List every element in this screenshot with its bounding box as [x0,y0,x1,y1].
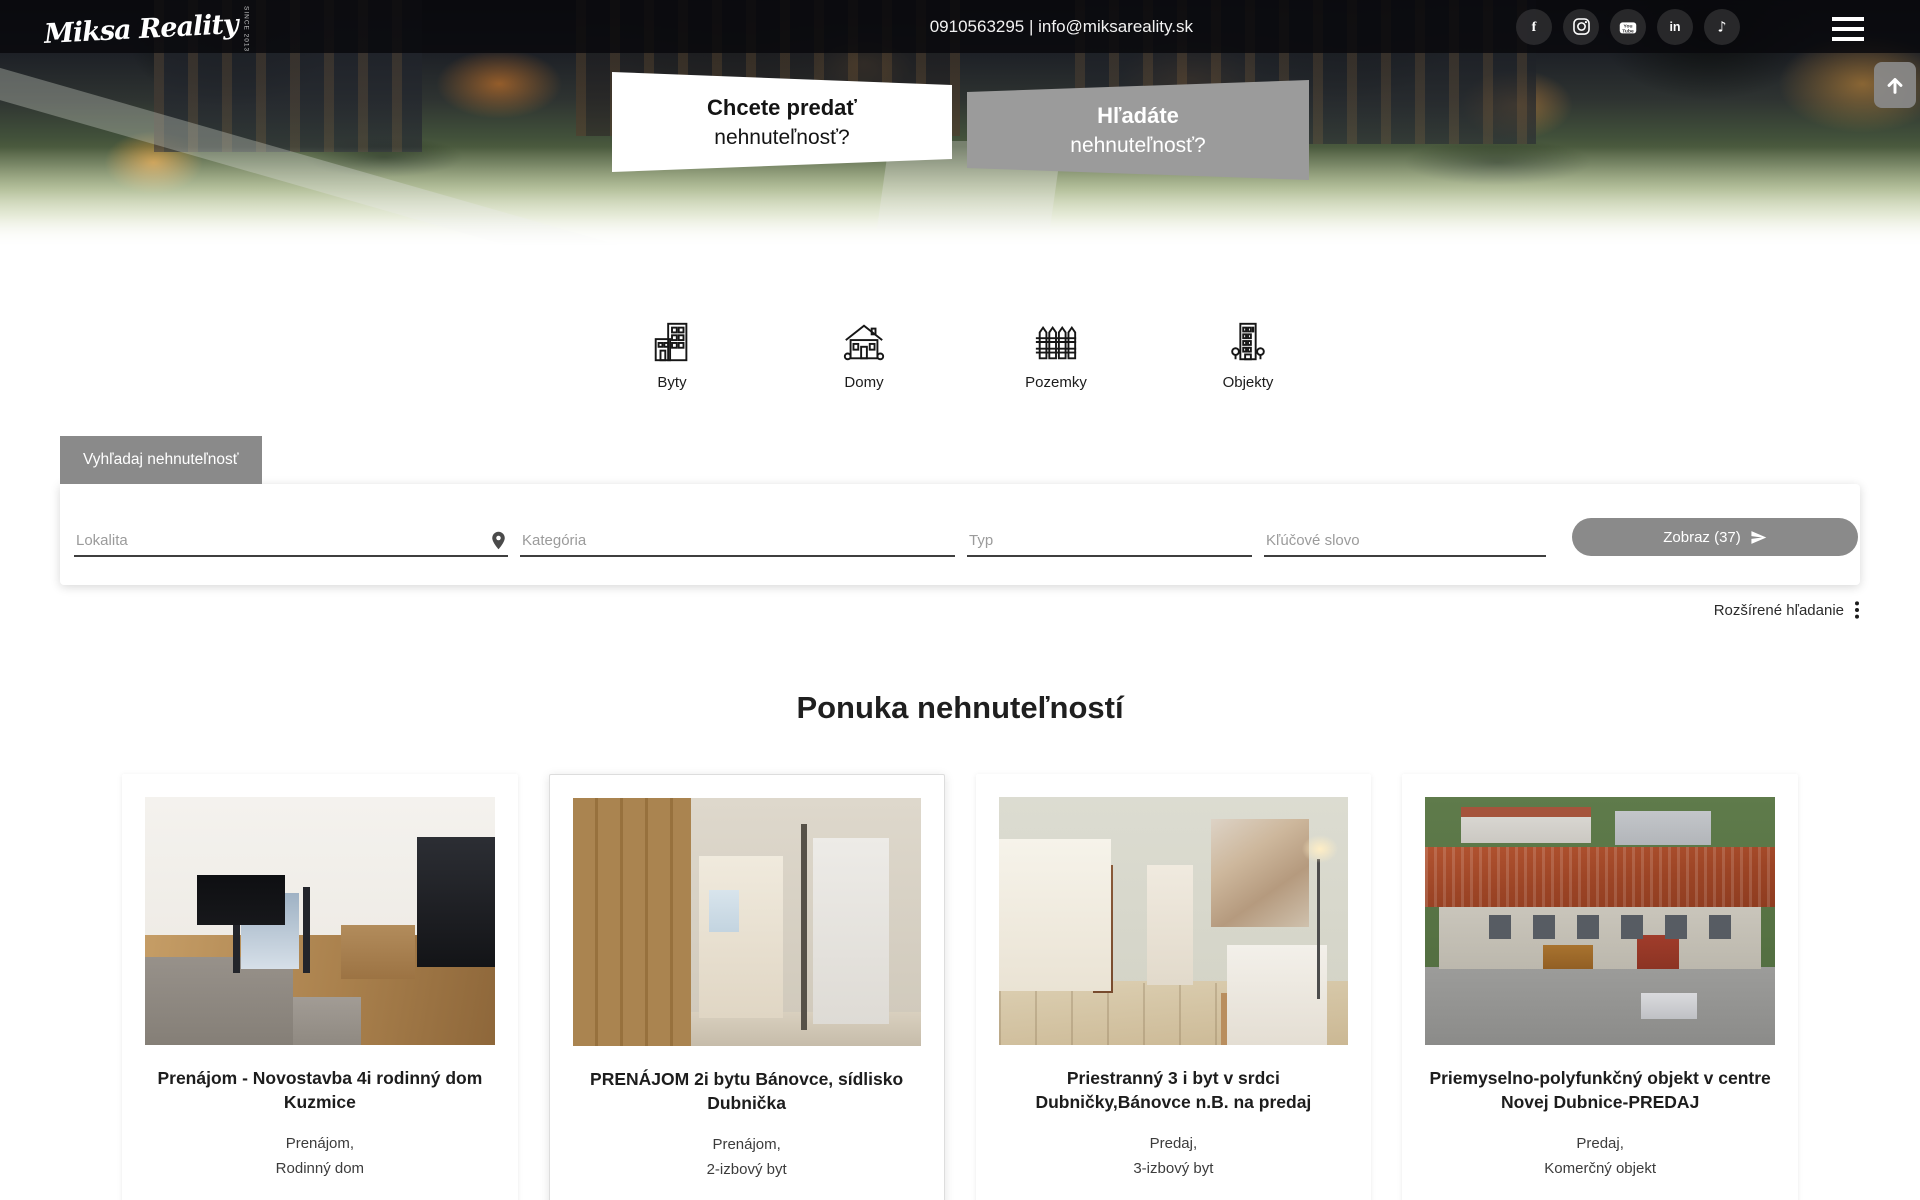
hero-section: Miksa Reality since 2013 0910563295 | in… [0,0,1920,262]
property-category: 3-izbový byt [999,1157,1349,1182]
property-card[interactable]: Priestranný 3 i byt v srdci Dubničky,Bán… [976,774,1372,1200]
scroll-top-button[interactable] [1874,62,1916,108]
menu-bar [1832,17,1864,21]
facebook-icon: f [1524,17,1544,37]
category-byty[interactable]: Byty [626,319,718,391]
type-field [967,526,1252,557]
svg-text:Tube: Tube [1622,28,1634,34]
find-property-banner[interactable]: Hľadáte nehnuteľnosť? [967,80,1309,180]
kebab-menu-icon [1854,600,1860,620]
send-icon [1750,529,1767,546]
social-links: f You Tube in [1516,9,1740,45]
property-category: Rodinný dom [145,1157,495,1182]
menu-bar [1832,27,1864,31]
category-domy[interactable]: Domy [818,319,910,391]
property-category: 2-izbový byt [573,1158,921,1183]
property-meta: Prenájom, 2-izbový byt [573,1133,921,1183]
category-label: Byty [657,374,686,391]
property-photo[interactable] [145,797,495,1045]
property-type: Predaj, [999,1132,1349,1157]
property-meta: Predaj, Komerčný objekt [1425,1132,1775,1182]
property-cards: Prenájom - Novostavba 4i rodinný dom Kuz… [122,774,1798,1200]
svg-text:♪: ♪ [1717,19,1726,35]
contact-info[interactable]: 0910563295 | info@miksareality.sk [930,17,1193,37]
category-label: Domy [844,374,883,391]
property-photo[interactable] [999,797,1349,1045]
listings-title: Ponuka nehnuteľností [0,690,1920,726]
property-card[interactable]: Priemyselno-polyfunkčný objekt v centre … [1402,774,1798,1200]
page: Miksa Reality since 2013 0910563295 | in… [0,0,1920,1200]
menu-button[interactable] [1832,17,1864,41]
property-type: Predaj, [1425,1132,1775,1157]
location-input[interactable] [74,526,508,557]
map-pin-icon [491,531,506,550]
category-label: Objekty [1223,374,1274,391]
category-objekty[interactable]: Objekty [1202,319,1294,391]
category-pozemky[interactable]: Pozemky [1010,319,1102,391]
category-shortcuts: Byty Domy Pozemky [0,262,1920,391]
advanced-search-row: Rozšírené hľadanie [60,600,1860,620]
youtube-link[interactable]: You Tube [1610,9,1646,45]
find-banner-line1: Hľadáte [1097,103,1179,129]
type-input[interactable] [967,526,1252,557]
category-label: Pozemky [1025,374,1087,391]
sell-banner-line2: nehnuteľnosť? [714,126,849,150]
sell-property-banner[interactable]: Chcete predať nehnuteľnosť? [612,72,952,172]
keyword-input[interactable] [1264,526,1546,557]
property-card[interactable]: Prenájom - Novostavba 4i rodinný dom Kuz… [122,774,518,1200]
tiktok-link[interactable]: ♪ [1704,9,1740,45]
top-bar: Miksa Reality since 2013 0910563295 | in… [0,0,1920,53]
linkedin-link[interactable]: in [1657,9,1693,45]
facebook-link[interactable]: f [1516,9,1552,45]
find-banner-line2: nehnuteľnosť? [1070,134,1205,158]
keyword-field [1264,526,1546,557]
property-photo[interactable] [573,798,921,1046]
advanced-search-label: Rozšírené hľadanie [1714,602,1844,619]
instagram-link[interactable] [1563,9,1599,45]
property-title[interactable]: Prenájom - Novostavba 4i rodinný dom Kuz… [145,1067,495,1114]
menu-bar [1832,37,1864,41]
property-meta: Prenájom, Rodinný dom [145,1132,495,1182]
property-title[interactable]: Priemyselno-polyfunkčný objekt v centre … [1425,1067,1775,1114]
apartments-icon [649,319,695,365]
svg-text:in: in [1669,20,1680,34]
search-panel: Zobraz (37) [60,484,1860,585]
property-title[interactable]: Priestranný 3 i byt v srdci Dubničky,Bán… [999,1067,1349,1114]
fence-icon [1033,319,1079,365]
property-category: Komerčný objekt [1425,1157,1775,1182]
category-field [520,526,955,557]
property-meta: Predaj, 3-izbový byt [999,1132,1349,1182]
logo[interactable]: Miksa Reality since 2013 [44,6,257,52]
logo-tagline: since 2013 [243,6,250,52]
listings-section: Ponuka nehnuteľností Prenájom - Novostav… [0,690,1920,1200]
property-type: Prenájom, [145,1132,495,1157]
advanced-search-link[interactable]: Rozšírené hľadanie [1714,600,1860,620]
house-icon [841,319,887,365]
arrow-up-icon [1884,74,1906,96]
logo-text: Miksa Reality [43,9,238,50]
category-input[interactable] [520,526,955,557]
svg-text:f: f [1532,19,1537,35]
location-field [74,526,508,557]
instagram-icon [1572,17,1591,36]
linkedin-icon: in [1665,17,1685,37]
property-card[interactable]: PRENÁJOM 2i bytu Bánovce, sídlisko Dubni… [549,774,945,1200]
search-tab[interactable]: Vyhľadaj nehnuteľnosť [60,436,262,484]
building-icon [1225,319,1271,365]
search-section: Vyhľadaj nehnuteľnosť Zobraz (37) [60,436,1860,585]
sell-banner-line1: Chcete predať [707,95,857,121]
property-title[interactable]: PRENÁJOM 2i bytu Bánovce, sídlisko Dubni… [573,1068,921,1115]
tiktok-icon: ♪ [1712,17,1732,37]
show-results-button[interactable]: Zobraz (37) [1572,518,1858,556]
property-type: Prenájom, [573,1133,921,1158]
youtube-icon: You Tube [1617,16,1639,38]
property-photo[interactable] [1425,797,1775,1045]
show-results-label: Zobraz (37) [1663,529,1741,546]
